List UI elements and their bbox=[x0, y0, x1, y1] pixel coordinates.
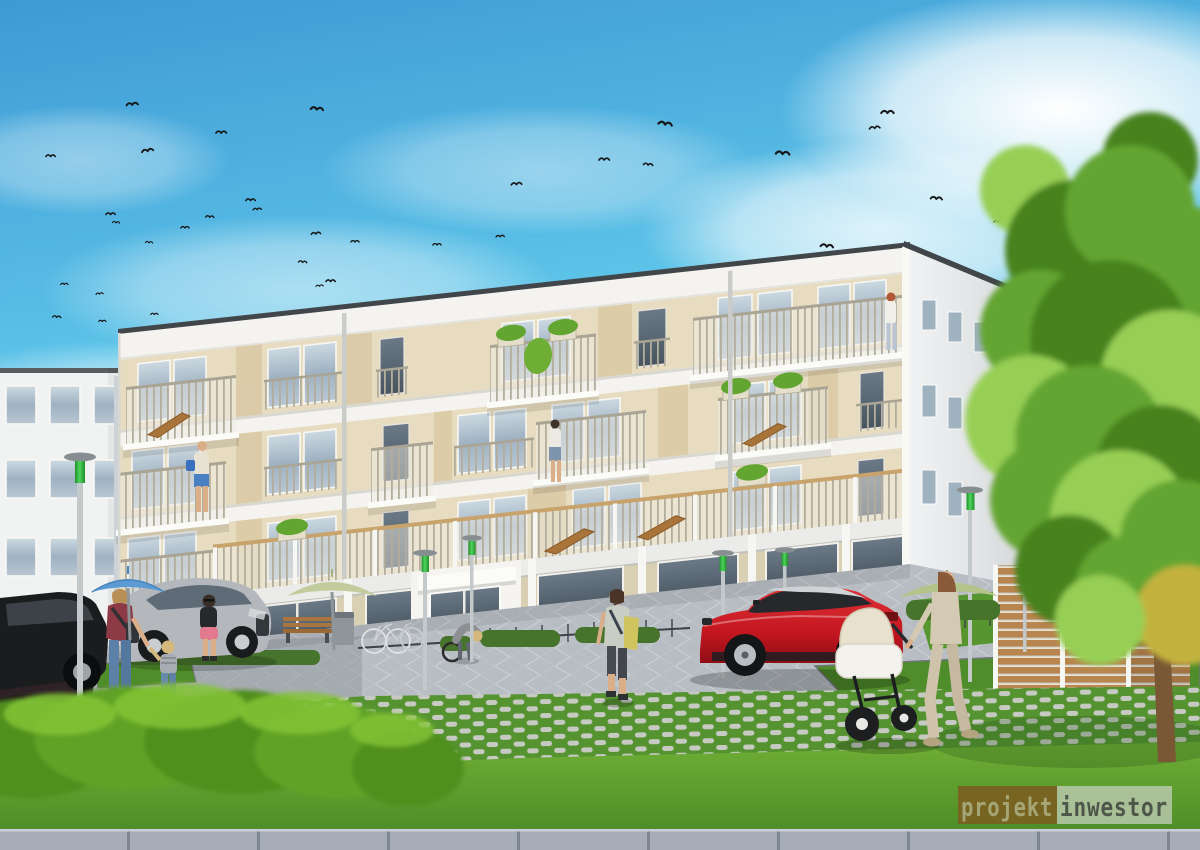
architectural-rendering: projekt inwestor bbox=[0, 0, 1200, 850]
balcony bbox=[368, 441, 436, 515]
downspout-pipe bbox=[728, 271, 733, 537]
black-suv bbox=[0, 592, 108, 691]
lamp-green-tube bbox=[469, 541, 476, 555]
side-mirror bbox=[753, 600, 760, 605]
stroller-bassinet bbox=[836, 644, 902, 678]
lamp-green-tube bbox=[422, 556, 430, 572]
downspout-pipe bbox=[342, 313, 347, 579]
lamp-green-tube bbox=[720, 556, 727, 571]
balcony bbox=[116, 461, 229, 544]
watering-can bbox=[186, 460, 195, 471]
left-building-windows bbox=[6, 386, 118, 576]
watermark-text-projekt: projekt bbox=[961, 793, 1053, 823]
scene-canvas: projekt inwestor bbox=[0, 0, 1200, 850]
left-building-roofline bbox=[0, 368, 118, 373]
watermark: projekt inwestor bbox=[958, 786, 1172, 824]
lamp-green-tube bbox=[782, 553, 789, 566]
balcony bbox=[123, 375, 239, 459]
watermark-text-inwestor: inwestor bbox=[1060, 793, 1168, 823]
headlight bbox=[702, 618, 712, 625]
lamp-green-tube bbox=[967, 493, 975, 510]
silver-car bbox=[120, 578, 271, 662]
lamp-green-tube bbox=[75, 461, 85, 483]
concrete-curb bbox=[0, 831, 1200, 850]
sunglasses bbox=[204, 599, 214, 602]
yellow-tote-bag bbox=[624, 616, 639, 650]
